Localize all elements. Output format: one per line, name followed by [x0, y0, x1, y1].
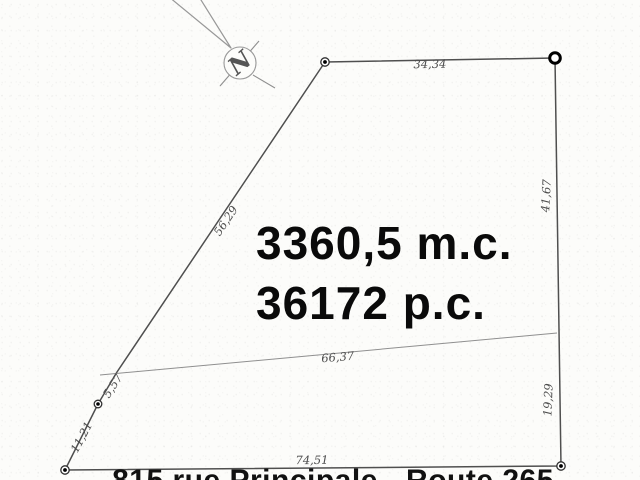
address-caption: 815 rue Principale - Route 265 — [112, 464, 554, 480]
vertex-marker-top-right — [550, 53, 561, 64]
dimension-left-upper: 56,29 — [211, 203, 241, 238]
vertex-marker-bottom-left — [61, 466, 69, 474]
area-metric-label: 3360,5 m.c. — [256, 217, 513, 269]
north-icon: N — [221, 44, 258, 82]
dimension-interior: 66,37 — [321, 349, 356, 366]
survey-plan-canvas: N 34,34 41,67 19,29 74,51 56, — [0, 0, 640, 480]
vertex-marker-top — [321, 58, 329, 66]
area-imperial-label: 36172 p.c. — [256, 277, 486, 329]
dimension-right-lower: 19,29 — [540, 383, 555, 416]
survey-plan-drawing: N 34,34 41,67 19,29 74,51 56, — [0, 0, 640, 480]
dimension-right-upper: 41,67 — [538, 178, 554, 213]
vertex-marker-bottom-right — [557, 462, 565, 470]
compass-tick-line — [253, 75, 275, 88]
dimension-left-lower: 11,21 — [68, 419, 96, 455]
dimension-top: 34,34 — [413, 57, 446, 72]
north-arrow-shaft — [163, 0, 231, 48]
vertex-marker-mid-left — [94, 400, 102, 408]
